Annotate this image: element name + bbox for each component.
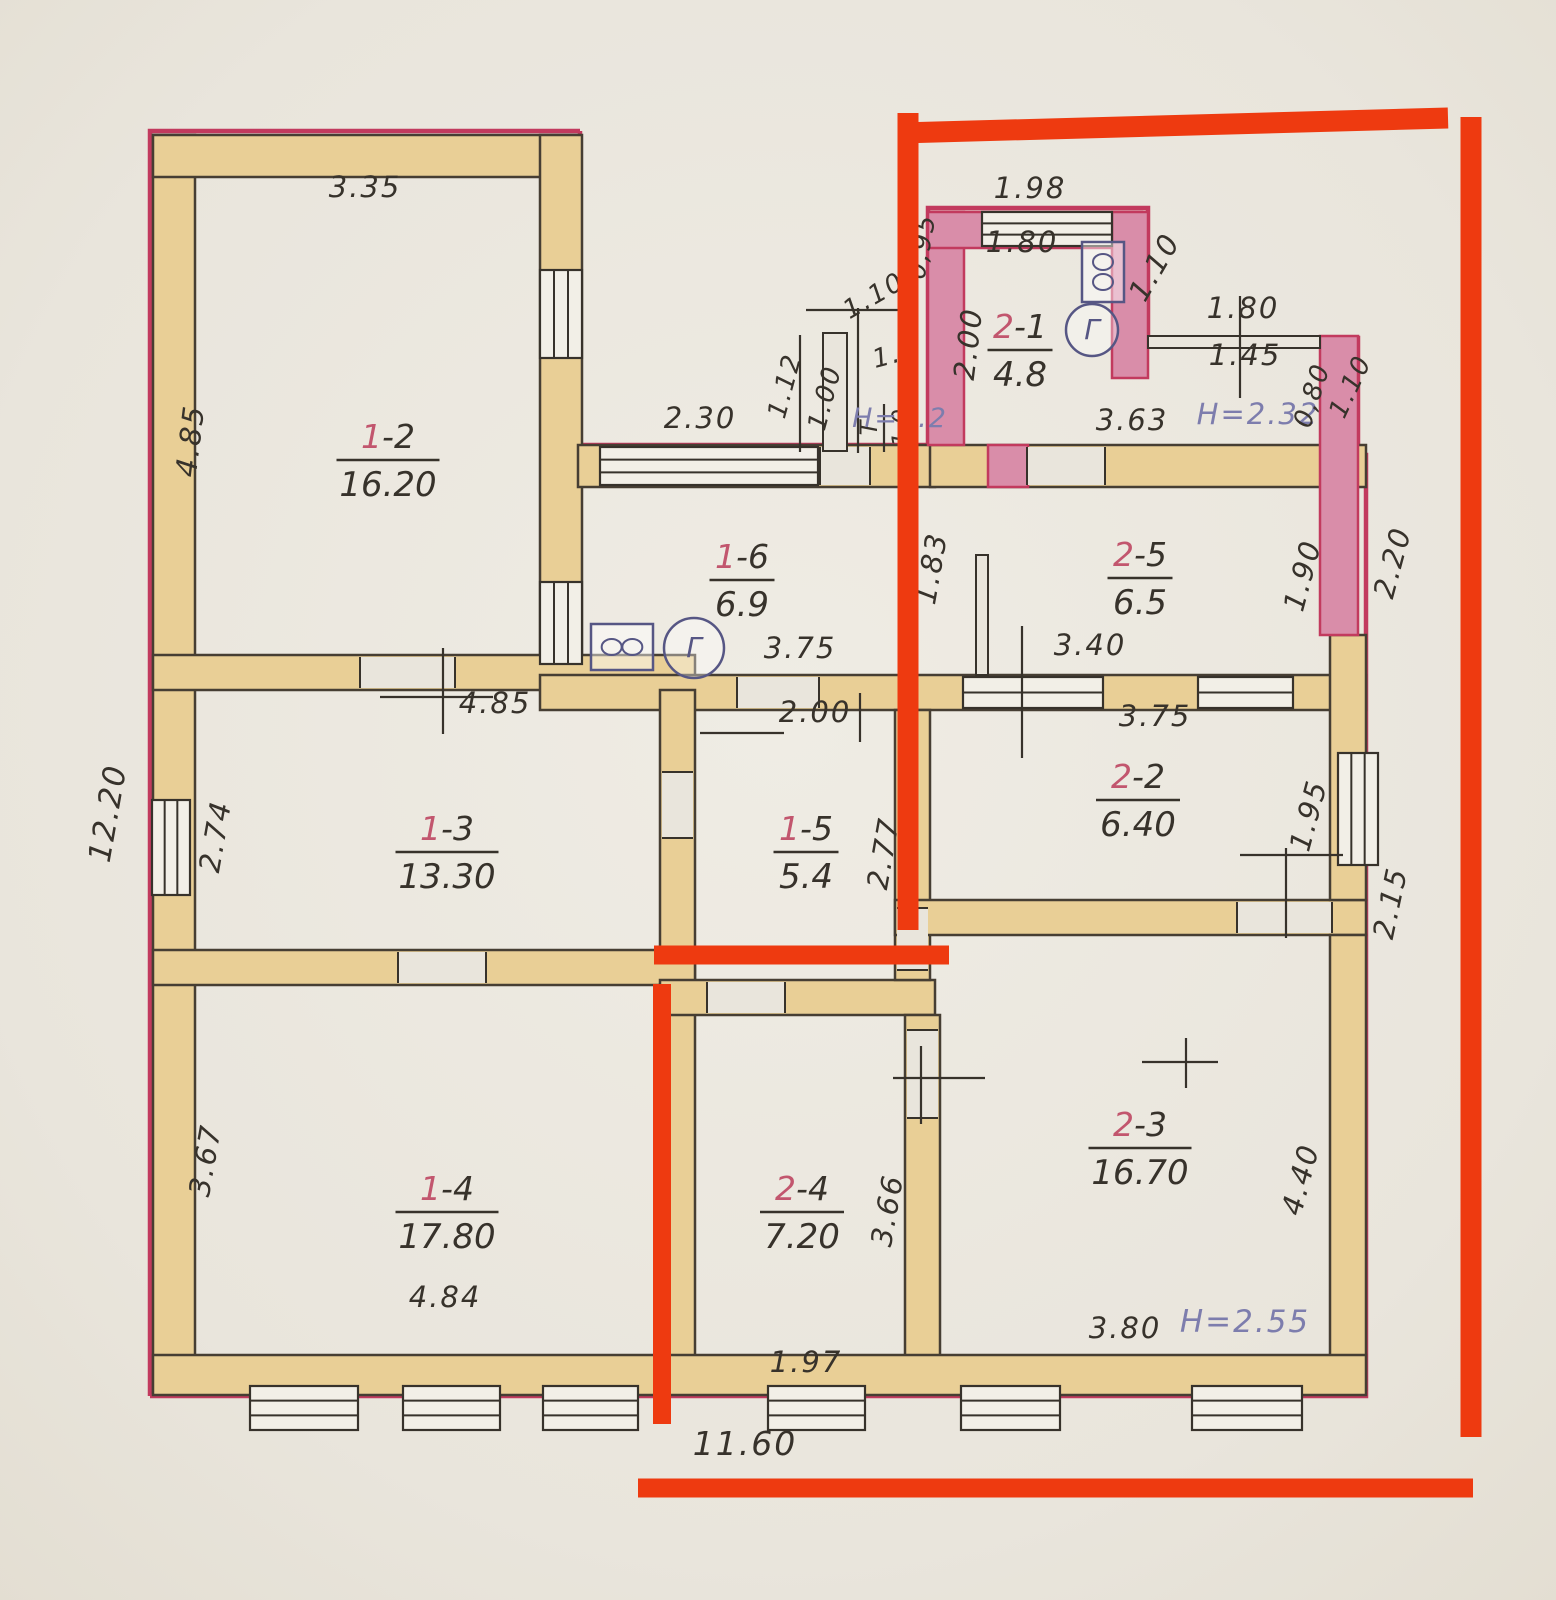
- dimension-text: 3.75: [764, 631, 837, 665]
- room-area: 5.4: [779, 857, 833, 897]
- dimension-text: 1.80: [986, 225, 1059, 259]
- dimension-text: 11.60: [693, 1424, 797, 1463]
- dimension-text: 1.97: [770, 1345, 843, 1379]
- dimension-text: 3.63: [1096, 403, 1169, 437]
- gas-meter-letter: Г: [686, 631, 704, 664]
- door-opening: [820, 447, 870, 485]
- gas-meter-letter: Г: [1084, 313, 1102, 346]
- room-number: 1-6: [715, 537, 769, 576]
- room-number: 1-4: [420, 1169, 474, 1208]
- floor-plan-drawing: ГГ 1-216.201-313.301-417.801-55.41-66.92…: [0, 0, 1556, 1600]
- room-area: 17.80: [398, 1217, 495, 1257]
- room-number: 1-3: [420, 809, 474, 848]
- room-number: 2-4: [775, 1169, 829, 1208]
- room-number: 2-1: [993, 307, 1047, 346]
- window-symbol: [403, 1386, 500, 1430]
- room-area: 6.9: [715, 585, 769, 625]
- wall: [660, 980, 935, 1015]
- door-opening: [1237, 902, 1332, 933]
- red-marker-line: [900, 118, 1448, 133]
- room-area: 13.30: [398, 857, 495, 897]
- window-symbol: [1338, 753, 1378, 865]
- window-symbol: [1192, 1386, 1302, 1430]
- dimension-text: 1.80: [1207, 291, 1280, 325]
- dimension-text: 4.85: [459, 686, 532, 720]
- window-symbol: [540, 582, 582, 664]
- dimension-text: 2.00: [779, 695, 852, 729]
- room-number: 2-3: [1113, 1105, 1167, 1144]
- window-symbol: [543, 1386, 638, 1430]
- thin-partition: [976, 555, 988, 675]
- door-opening: [360, 657, 455, 688]
- window-symbol: [250, 1386, 358, 1430]
- room-area: 16.20: [339, 465, 436, 505]
- room-label: 1-55.4: [774, 809, 839, 897]
- wall: [153, 135, 195, 1393]
- dimension-text: 3.35: [329, 170, 402, 204]
- room-number: 2-2: [1111, 757, 1165, 796]
- wall: [1330, 935, 1366, 1390]
- gas-stove-icon: [1082, 242, 1124, 302]
- room-area: 7.20: [764, 1217, 840, 1257]
- door-opening: [707, 982, 785, 1013]
- pink-wall: [988, 445, 1028, 487]
- room-area: 16.70: [1091, 1153, 1188, 1193]
- window-symbol: [961, 1386, 1060, 1430]
- wall: [660, 690, 695, 990]
- door-opening: [1027, 447, 1105, 485]
- door-opening: [398, 952, 486, 983]
- window-symbol: [600, 447, 818, 485]
- window-symbol: [540, 270, 582, 358]
- room-number: 1-5: [779, 809, 833, 848]
- room-area: 6.5: [1113, 583, 1167, 623]
- dimension-text: 3.80: [1089, 1311, 1162, 1345]
- dimension-text: 2.30: [664, 401, 737, 435]
- room-number: 2-5: [1113, 535, 1167, 574]
- room-area: 4.8: [993, 355, 1047, 395]
- dimension-text: 1.98: [994, 171, 1067, 205]
- door-opening: [662, 772, 693, 838]
- floor-plan-page: ГГ 1-216.201-313.301-417.801-55.41-66.92…: [0, 0, 1556, 1600]
- room-number: 1-2: [361, 417, 415, 456]
- dimension-text: H=2.55: [1180, 1304, 1310, 1340]
- room-label: 2-14.8: [988, 307, 1053, 395]
- door-opening: [907, 1030, 938, 1118]
- room-label: 1-66.9: [710, 537, 775, 625]
- room-area: 6.40: [1100, 805, 1176, 845]
- room-label: 2-56.5: [1108, 535, 1173, 623]
- dimension-text: 4.84: [409, 1280, 482, 1314]
- dimension-text: 1.45: [1209, 338, 1282, 372]
- dimension-text: 3.40: [1054, 628, 1127, 662]
- window-symbol: [152, 800, 190, 895]
- dimension-text: 3.75: [1119, 699, 1192, 733]
